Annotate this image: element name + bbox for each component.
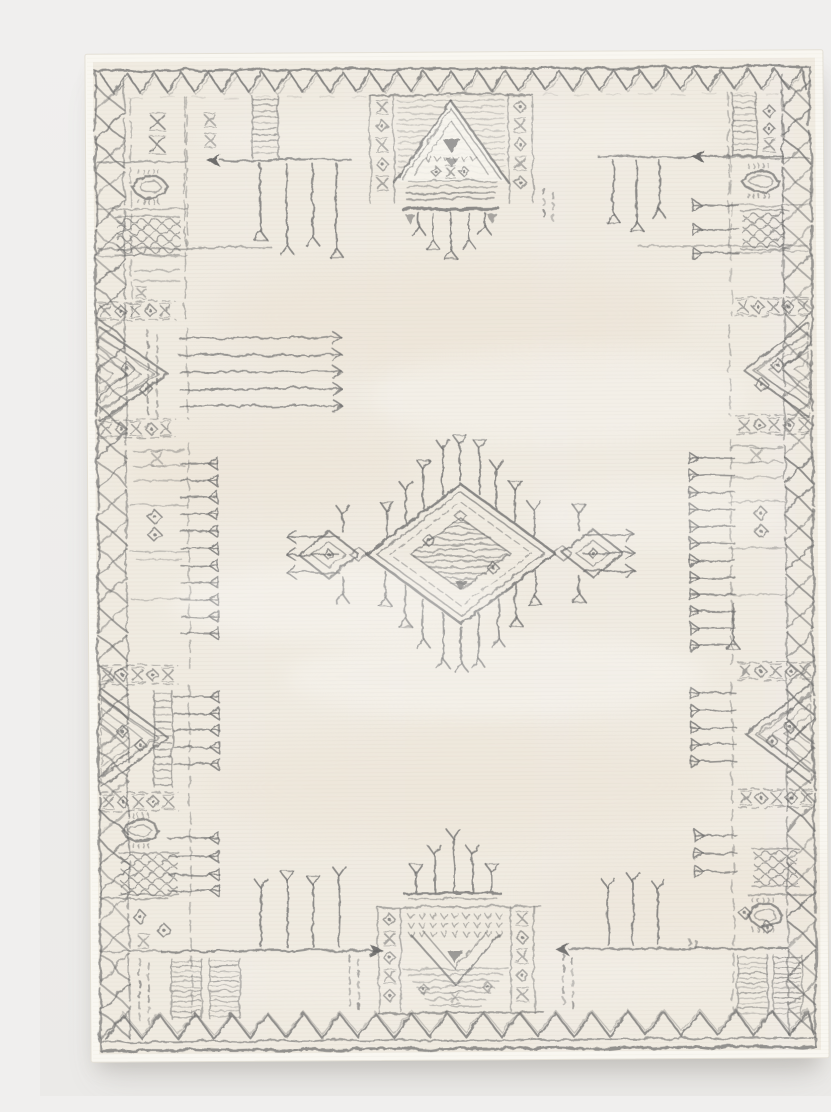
rug [85, 50, 831, 1063]
rug-product-photo [40, 16, 831, 1096]
rug-photo-canvas [40, 16, 831, 1096]
rug-base [85, 50, 831, 1063]
